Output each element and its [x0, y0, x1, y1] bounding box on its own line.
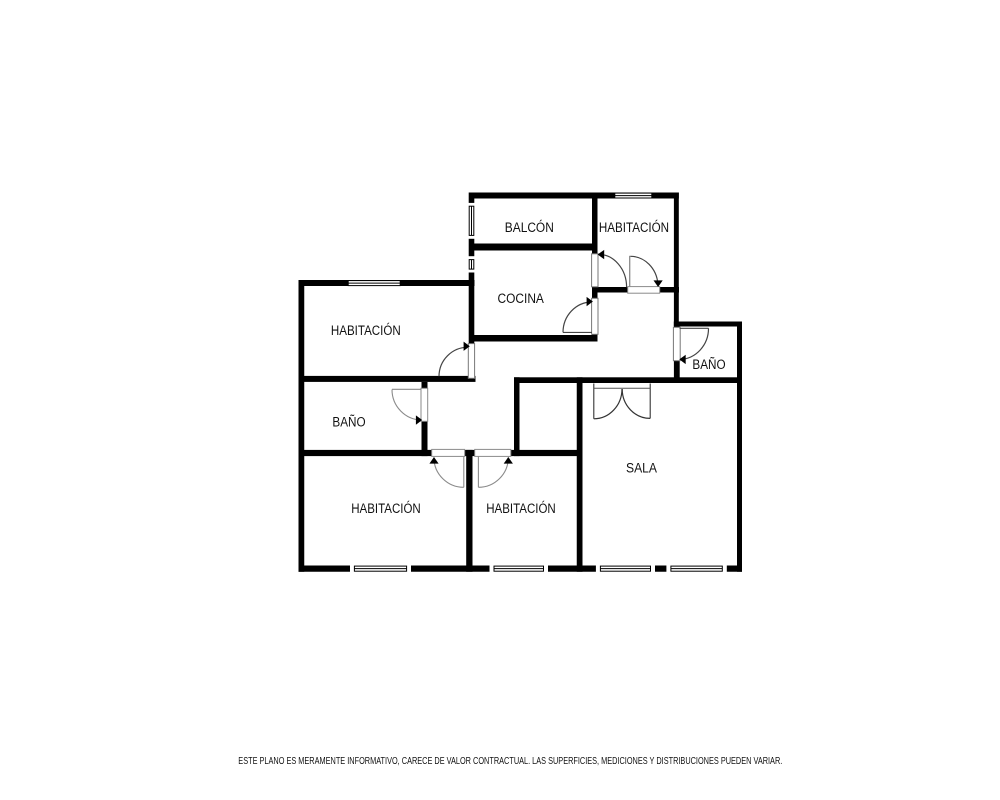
svg-text:BAÑO: BAÑO — [332, 414, 365, 431]
svg-text:ESTE PLANO ES MERAMENTE INFORM: ESTE PLANO ES MERAMENTE INFORMATIVO, CAR… — [238, 756, 782, 767]
svg-text:BAÑO: BAÑO — [692, 356, 725, 373]
svg-text:SALA: SALA — [626, 460, 657, 476]
svg-text:COCINA: COCINA — [498, 291, 545, 307]
svg-text:BALCÓN: BALCÓN — [505, 219, 554, 236]
svg-text:HABITACIÓN: HABITACIÓN — [331, 322, 401, 339]
svg-text:HABITACIÓN: HABITACIÓN — [486, 500, 556, 517]
svg-text:HABITACIÓN: HABITACIÓN — [351, 500, 421, 517]
svg-text:HABITACIÓN: HABITACIÓN — [599, 219, 669, 236]
